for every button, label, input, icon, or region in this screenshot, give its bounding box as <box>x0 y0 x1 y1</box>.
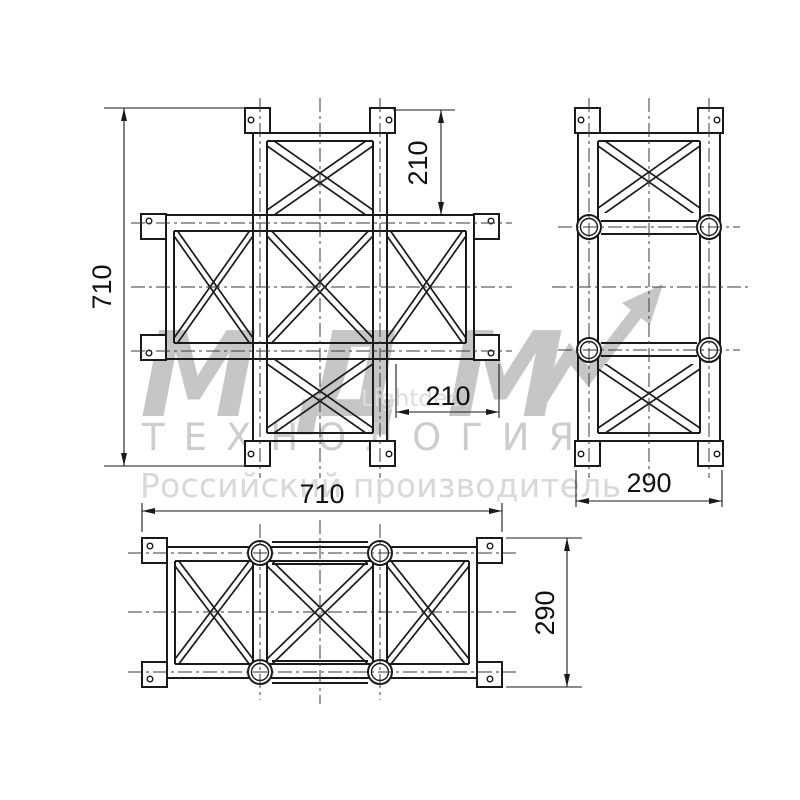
dim-label-front-210-top: 210 <box>403 140 433 185</box>
watermark-line2: Российский производитель <box>140 466 622 505</box>
watermark-line1: ТЕХНОЛОГИЯ <box>141 416 593 459</box>
bottom-view <box>128 520 516 704</box>
dim-label-front-210-bottom: 210 <box>425 381 470 411</box>
bottom-couplers <box>248 541 392 684</box>
dim-label-side-290: 290 <box>626 468 671 498</box>
dim-bottom-290: 290 <box>506 538 582 687</box>
truss-technical-drawing: МДМ ТЕХНОЛОГИЯ Российский производитель … <box>0 0 800 800</box>
drawing-canvas: МДМ ТЕХНОЛОГИЯ Российский производитель … <box>0 0 800 800</box>
dim-label-front-710: 710 <box>87 264 117 309</box>
dim-label-bottom-710: 710 <box>299 479 344 509</box>
dim-label-bottom-290: 290 <box>530 590 560 635</box>
dim-front-210-top: 210 <box>393 110 455 215</box>
